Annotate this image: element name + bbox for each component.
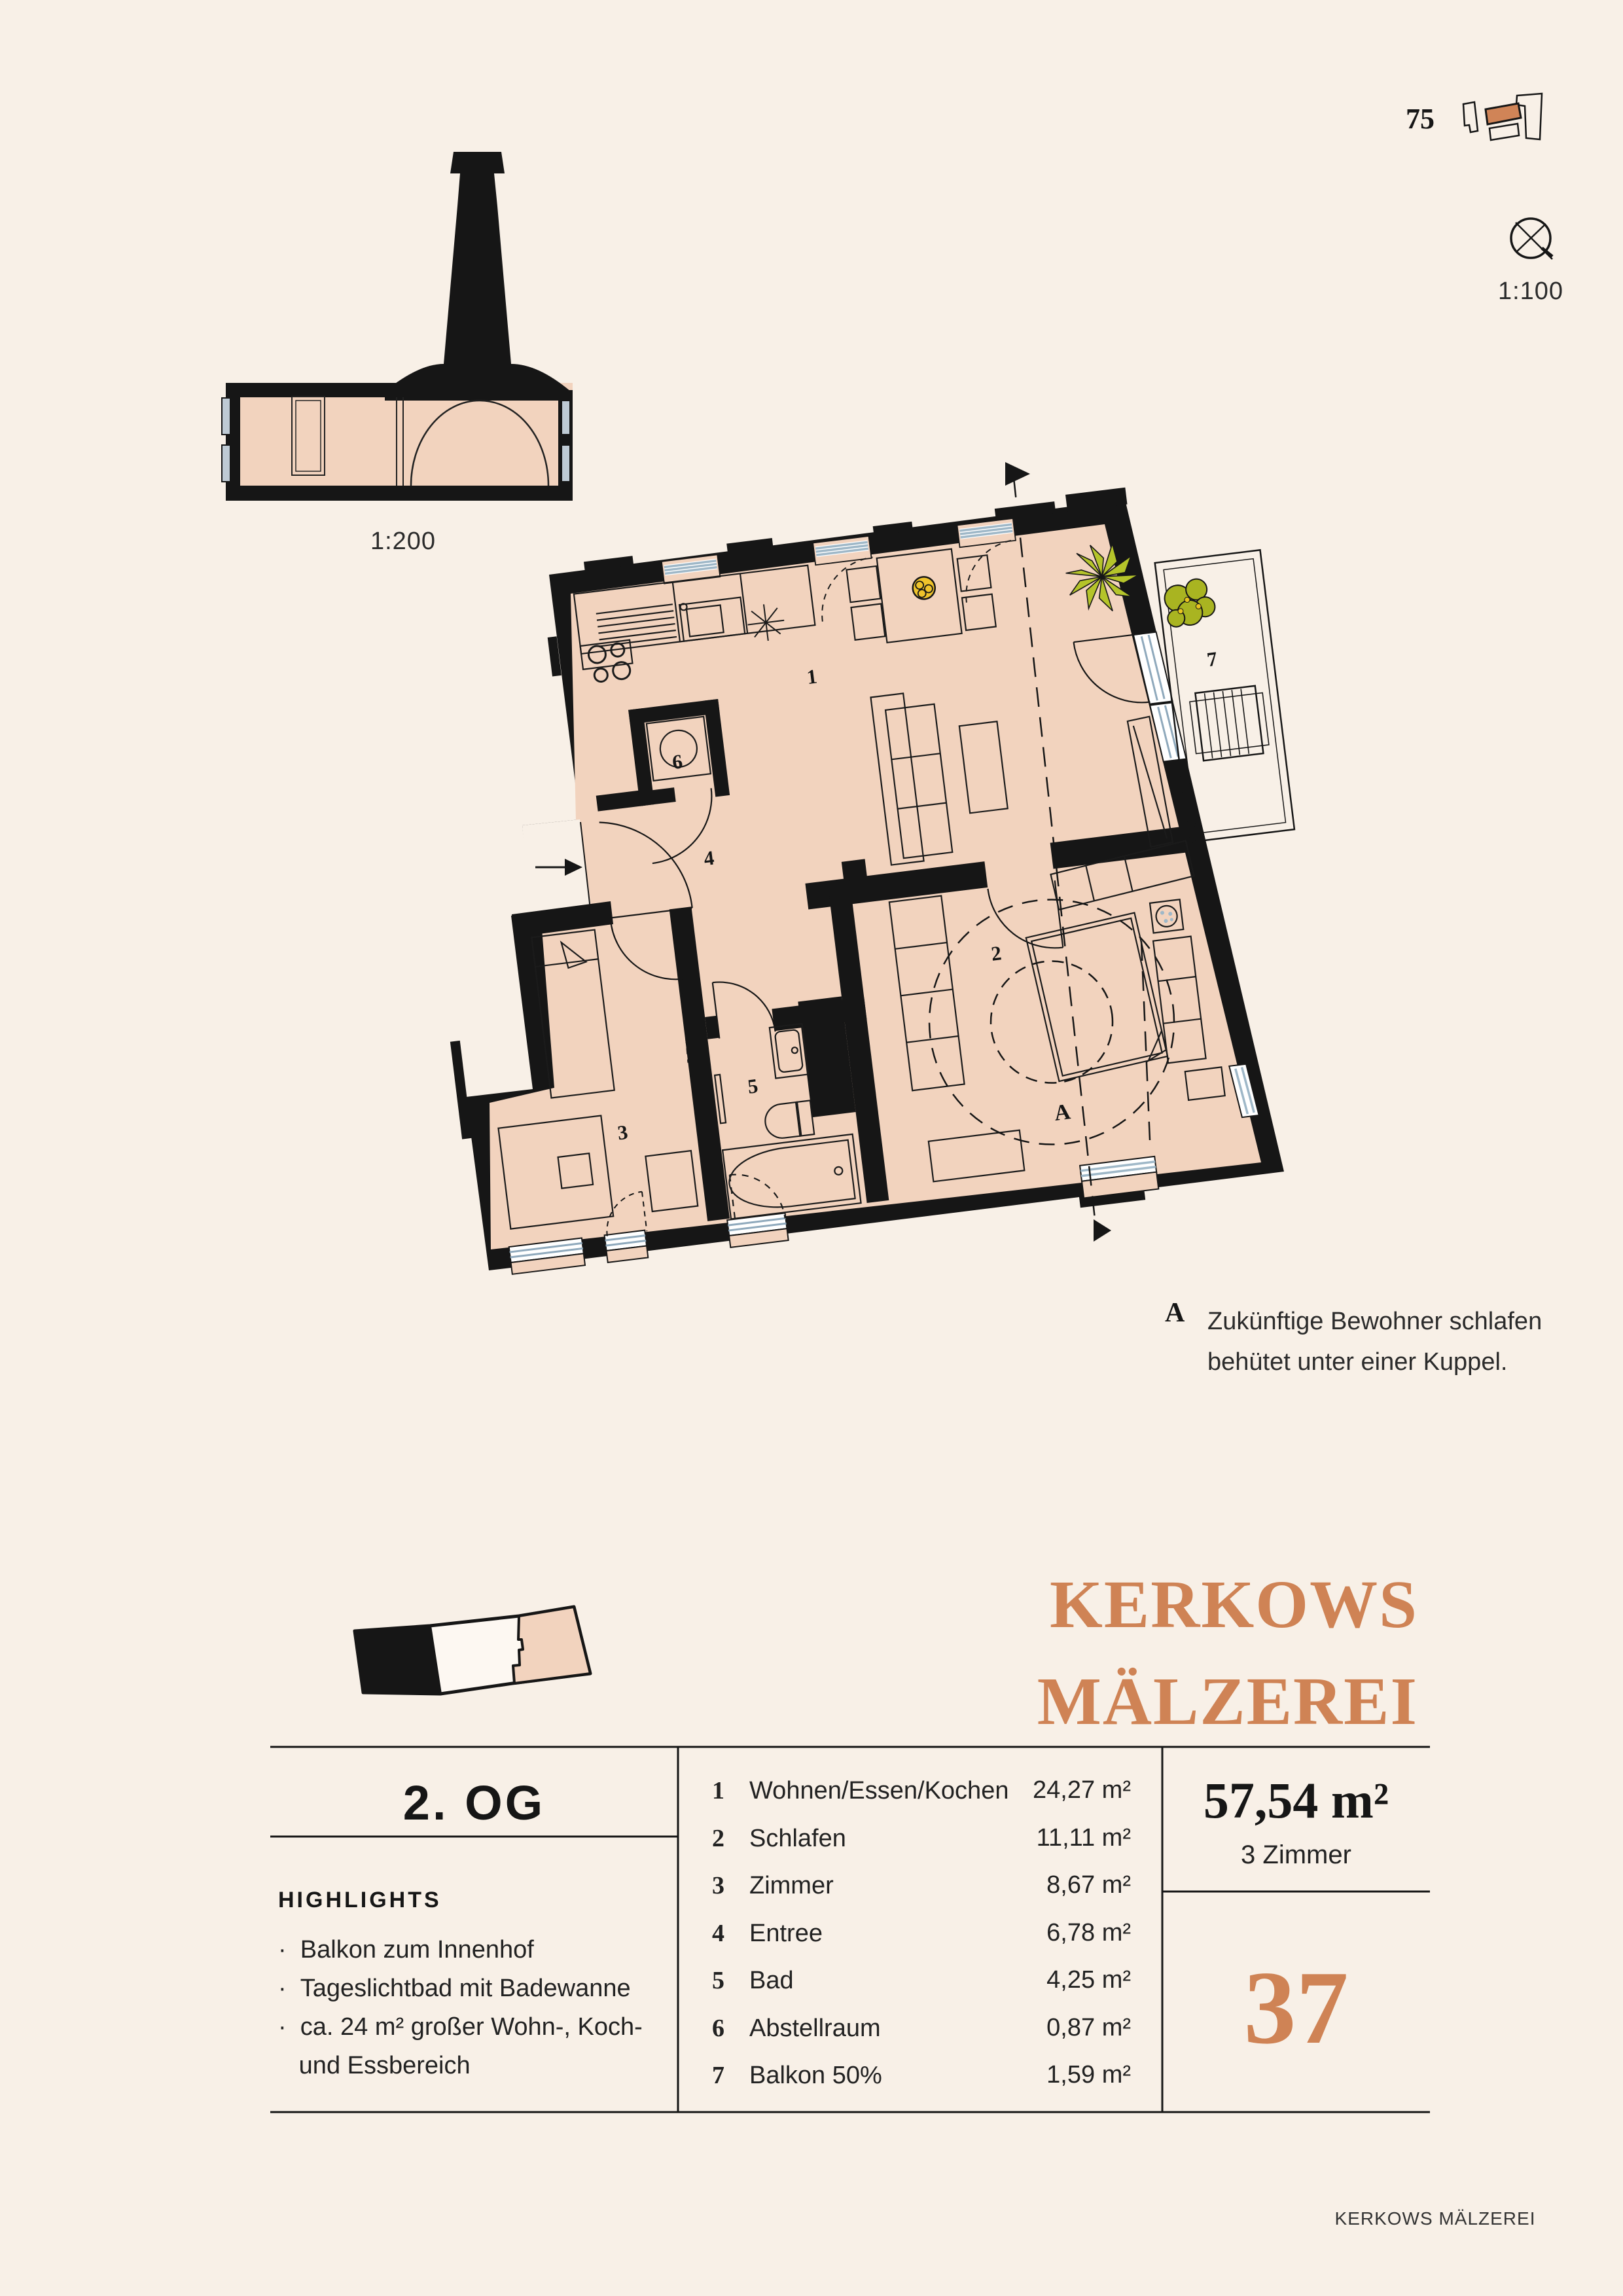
svg-text:7: 7: [1205, 647, 1219, 672]
svg-text:A: A: [1053, 1100, 1072, 1126]
